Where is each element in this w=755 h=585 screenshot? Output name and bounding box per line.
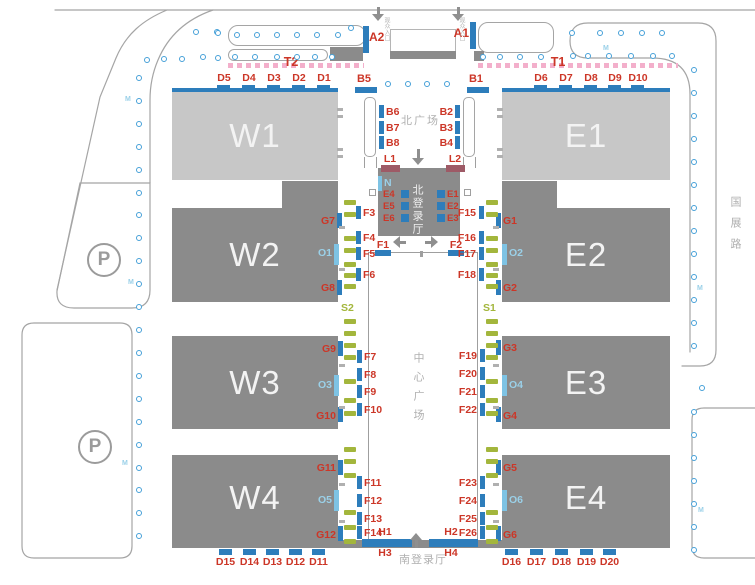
hall-edge-tick xyxy=(493,364,499,367)
right-road-dots xyxy=(691,113,697,119)
right-loop-dots xyxy=(669,53,675,59)
gate-bar-b6 xyxy=(379,105,384,118)
gate-bar-l2 xyxy=(446,165,465,172)
right-loop-dots xyxy=(659,30,665,36)
left-road-dots xyxy=(136,533,142,539)
gate-label-d11: D11 xyxy=(302,557,335,568)
east-green-dashes xyxy=(486,273,498,278)
right-road-dots xyxy=(691,343,697,349)
gate-bar-d4 xyxy=(242,85,255,92)
west-green-dashes xyxy=(344,343,356,348)
gate-bar-f16 xyxy=(479,231,484,244)
hall-edge-tick xyxy=(339,226,345,229)
gate-bar-d2 xyxy=(292,85,305,92)
gate-bar-f21 xyxy=(480,385,485,398)
gate-label-o4: O4 xyxy=(509,380,527,391)
west-green-dashes xyxy=(344,212,356,217)
west-green-dashes xyxy=(344,284,356,289)
bus-lane-lower-dots xyxy=(294,54,300,60)
bus-lane-lower-dots xyxy=(232,54,238,60)
hall-e2: E2 xyxy=(502,208,670,302)
bus-lane-upper-dots xyxy=(254,32,260,38)
east-green-dashes xyxy=(486,379,498,384)
east-green-dashes xyxy=(486,212,498,217)
west-green-dashes xyxy=(344,459,356,464)
gate-label-g11: G11 xyxy=(310,463,336,474)
right-road-dots xyxy=(691,136,697,142)
exhibition-center-map: W1E1W2E2W3E3W4E4A2A1T2T1B5B1B6B7B8B2B3B4… xyxy=(0,0,755,585)
gate-label-f18: F18 xyxy=(452,270,476,281)
metro-mark: M xyxy=(697,285,703,292)
gate-bar-b8 xyxy=(379,136,384,149)
walk-stub-2 xyxy=(376,157,377,168)
north-gate-strip xyxy=(390,51,456,59)
metro-mark: M xyxy=(128,279,134,286)
gate-bar-b7 xyxy=(379,121,384,134)
hall-label: E2 xyxy=(565,236,607,274)
right-road-dots xyxy=(691,182,697,188)
east-green-dashes xyxy=(486,398,498,403)
hall-e1: E1 xyxy=(502,92,670,180)
gate-bar-b5 xyxy=(355,87,377,93)
gate-label-f17: F17 xyxy=(452,249,476,260)
gate-bar-d1 xyxy=(317,85,330,92)
hall-label: W2 xyxy=(229,236,281,274)
hall-edge-tick xyxy=(339,406,345,409)
gate-label-e4r: E4 xyxy=(383,190,399,200)
east-green-dashes xyxy=(486,331,498,336)
gate-label-f20: F20 xyxy=(453,369,477,380)
gate-label-h2: H2 xyxy=(440,527,462,538)
bus-lane-upper-dots xyxy=(274,32,280,38)
parking-icon: P xyxy=(78,430,112,464)
gate-bar-g9 xyxy=(338,341,343,356)
hall-edge-tick xyxy=(337,148,343,151)
left-road-dots xyxy=(136,304,142,310)
right-road-dots xyxy=(691,320,697,326)
hall-edge-tick xyxy=(493,406,499,409)
gate-label-f19: F19 xyxy=(453,351,477,362)
gate-label-d4: D4 xyxy=(236,73,262,84)
gate-label-g2: G2 xyxy=(503,283,525,294)
bus-lane-lower-dots xyxy=(215,55,221,61)
left-road-dots xyxy=(136,350,142,356)
gate-label-f24: F24 xyxy=(453,496,477,507)
gate-bar-d3 xyxy=(267,85,280,92)
west-green-dashes xyxy=(344,379,356,384)
hall-label: W4 xyxy=(229,479,281,517)
gate-label-n: N xyxy=(384,178,396,189)
hall-label: E3 xyxy=(565,364,607,402)
west-green-dashes xyxy=(344,447,356,452)
gate-bar-d17 xyxy=(530,549,543,555)
bus-lane-upper-dots xyxy=(234,32,240,38)
west-green-dashes xyxy=(344,273,356,278)
gate-label-f10: F10 xyxy=(364,405,390,416)
gate-label-g4: G4 xyxy=(503,411,525,422)
hall-edge-tick xyxy=(339,364,345,367)
right-road-dots xyxy=(691,297,697,303)
gate-label-f12: F12 xyxy=(364,496,390,507)
gate-bar-d9 xyxy=(608,85,621,92)
right-loop-dots xyxy=(650,53,656,59)
gate-label-d5: D5 xyxy=(211,73,237,84)
right-road-dots xyxy=(691,524,697,530)
gate-label-t1: T1 xyxy=(545,56,571,69)
kiosk-right xyxy=(464,189,471,196)
gate-bar-d13 xyxy=(266,549,279,555)
gate-bar-d7 xyxy=(559,85,572,92)
gate-bar-a1 xyxy=(470,22,476,49)
east-green-dashes xyxy=(486,284,498,289)
gate-label-g5: G5 xyxy=(503,463,525,474)
bus-lane-right-dots xyxy=(480,54,486,60)
gate-bar-f18 xyxy=(479,268,484,281)
south-entrance-arrow xyxy=(410,533,422,548)
hall-blue-line-west xyxy=(172,88,338,92)
gate-bar-f11 xyxy=(357,476,362,489)
west-green-dashes xyxy=(344,331,356,336)
gate-label-f4: F4 xyxy=(363,233,385,244)
hall-e4: E4 xyxy=(502,455,670,540)
east-green-dashes xyxy=(486,262,498,267)
right-loop-dots xyxy=(628,53,634,59)
left-road-dots xyxy=(136,190,142,196)
hall-exit-arrow-west xyxy=(393,236,406,248)
gate-label-e1r: E1 xyxy=(447,190,463,200)
east-green-dashes xyxy=(486,447,498,452)
gate-label-f21: F21 xyxy=(453,387,477,398)
left-road-dots xyxy=(136,258,142,264)
gate-bar-g11 xyxy=(338,460,343,475)
gate-bar-d5 xyxy=(217,85,230,92)
gate-label-g3: G3 xyxy=(503,343,525,354)
gate-label-g8: G8 xyxy=(313,283,335,294)
gate-label-b8: B8 xyxy=(386,138,406,149)
gate-bar-b3 xyxy=(455,121,460,134)
hall-edge-tick xyxy=(339,268,345,271)
east-green-dashes xyxy=(486,525,498,530)
right-road-dots xyxy=(691,478,697,484)
walkway-left xyxy=(364,97,376,157)
top-left-curve-dots xyxy=(200,54,206,60)
plaza-notch xyxy=(420,251,423,257)
gate-bar-d19 xyxy=(580,549,593,555)
left-road-dots xyxy=(136,465,142,471)
east-green-dashes xyxy=(486,200,498,205)
west-green-dashes xyxy=(344,398,356,403)
east-green-dashes xyxy=(486,473,498,478)
hall-edge-tick xyxy=(337,115,343,118)
west-green-dashes xyxy=(344,262,356,267)
gate-bar-f10 xyxy=(357,403,362,416)
t1-line xyxy=(478,63,678,68)
gate-bar-e2r xyxy=(437,202,445,210)
gate-bar-f20 xyxy=(480,367,485,380)
gate-bar-d16 xyxy=(505,549,518,555)
left-road-dots xyxy=(136,167,142,173)
gate-label-d1: D1 xyxy=(311,73,337,84)
north-plaza-text: 北广场 xyxy=(401,116,440,127)
gate-label-a2: A2 xyxy=(369,31,393,43)
gate-bar-e4r xyxy=(401,190,409,198)
bus-lane-lower-dots xyxy=(274,54,280,60)
east-green-dashes xyxy=(486,343,498,348)
gate-bar-f5 xyxy=(356,247,361,260)
right-road-dots xyxy=(691,159,697,165)
gate-label-g1: G1 xyxy=(503,216,525,227)
hall-edge-tick xyxy=(497,155,503,158)
gate-bar-d20 xyxy=(603,549,616,555)
visitor-entrance-text: 观众入口 xyxy=(458,17,464,41)
right-loop-dots xyxy=(639,30,645,36)
hall-edge-tick xyxy=(493,483,499,486)
hall-w1: W1 xyxy=(172,92,338,180)
bus-lane-upper-dots xyxy=(294,32,300,38)
hall-edge-tick xyxy=(339,520,345,523)
gate-label-b1: B1 xyxy=(463,74,489,85)
west-green-dashes xyxy=(344,525,356,530)
north-plaza-dots xyxy=(424,81,430,87)
west-green-dashes xyxy=(344,473,356,478)
left-road-dots xyxy=(136,281,142,287)
annex-top-left xyxy=(330,47,363,61)
gate-bar-f6 xyxy=(356,268,361,281)
gate-bar-b2 xyxy=(455,105,460,118)
gate-label-d6: D6 xyxy=(528,73,554,84)
parking-label: P xyxy=(98,249,111,271)
north-hall-text: 北登录厅 xyxy=(411,184,422,236)
gate-bar-f17 xyxy=(479,247,484,260)
gate-bar-f14 xyxy=(357,526,362,539)
hall-e3: E3 xyxy=(502,336,670,429)
gate-bar-d11 xyxy=(312,549,325,555)
gate-label-f9: F9 xyxy=(364,387,386,398)
gate-bar-o5 xyxy=(334,490,339,511)
parking-lot-2-outline xyxy=(22,323,132,558)
left-road-dots xyxy=(136,419,142,425)
gate-label-g6: G6 xyxy=(503,530,525,541)
center-plaza-text: 中心广场 xyxy=(412,352,423,428)
east-green-dashes xyxy=(486,355,498,360)
gate-label-f6: F6 xyxy=(363,270,385,281)
hall-exit-arrow-east xyxy=(425,236,438,248)
north-plaza-arrow xyxy=(412,149,424,165)
gate-label-f25: F25 xyxy=(453,514,477,525)
hall-edge-tick xyxy=(497,148,503,151)
gate-label-f22: F22 xyxy=(453,405,477,416)
bus-lane-right-dots xyxy=(538,54,544,60)
bus-lane-right-dots xyxy=(517,54,523,60)
left-road-dots xyxy=(136,98,142,104)
gate-label-e5r: E5 xyxy=(383,202,399,212)
right-road-dots xyxy=(691,228,697,234)
right-road-dots xyxy=(691,274,697,280)
gate-bar-l1 xyxy=(381,165,400,172)
gate-label-g7: G7 xyxy=(313,216,335,227)
gate-label-d10: D10 xyxy=(625,73,651,84)
left-road-dots xyxy=(136,327,142,333)
gate-label-o2: O2 xyxy=(509,248,527,259)
hall-edge-tick xyxy=(497,115,503,118)
west-green-dashes xyxy=(344,248,356,253)
gate-label-o3: O3 xyxy=(314,380,332,391)
right-road-dots xyxy=(691,455,697,461)
right-loop-dots xyxy=(597,30,603,36)
gate-label-f8: F8 xyxy=(364,370,386,381)
north-plaza-dots xyxy=(385,81,391,87)
bus-lane-upper-dots xyxy=(335,32,341,38)
gate-label-d20: D20 xyxy=(593,557,626,568)
bus-lane-upper-dots xyxy=(215,30,221,36)
gate-bar-f25 xyxy=(480,512,485,525)
gate-bar-e5r xyxy=(401,202,409,210)
gate-label-f7: F7 xyxy=(364,352,386,363)
hall-label: W1 xyxy=(229,117,281,155)
gate-label-f5: F5 xyxy=(363,249,385,260)
gate-bar-d18 xyxy=(555,549,568,555)
gate-bar-d8 xyxy=(584,85,597,92)
east-green-dashes xyxy=(486,248,498,253)
road-name-text: 国展路 xyxy=(729,196,740,259)
gate-bar-f22 xyxy=(480,403,485,416)
gate-label-o1: O1 xyxy=(314,248,332,259)
hall-edge-tick xyxy=(337,108,343,111)
bus-lane-right-dots xyxy=(497,54,503,60)
gate-bar-o2 xyxy=(502,244,507,265)
gate-bar-f8 xyxy=(357,368,362,381)
gate-label-l1: L1 xyxy=(378,154,402,165)
north-plaza-dots xyxy=(405,81,411,87)
gate-label-s1: S1 xyxy=(483,303,499,314)
annex-w1 xyxy=(282,181,338,209)
north-plaza-dots xyxy=(444,81,450,87)
right-road-dots xyxy=(691,90,697,96)
right-road-dots xyxy=(691,409,697,415)
left-road-dots xyxy=(136,442,142,448)
gate-bar-e6r xyxy=(401,214,409,222)
left-road-dots xyxy=(136,396,142,402)
south-hall-text: 南登录厅 xyxy=(399,555,447,566)
hall-edge-tick xyxy=(493,520,499,523)
gate-label-g10: G10 xyxy=(310,411,336,422)
gate-bar-f7 xyxy=(357,350,362,363)
bus-lane-lower-dots xyxy=(312,54,318,60)
west-green-dashes xyxy=(344,319,356,324)
hall-edge-tick xyxy=(493,268,499,271)
left-road-dots xyxy=(136,75,142,81)
gate-bar-f23 xyxy=(480,476,485,489)
metro-mark: M xyxy=(125,96,131,103)
right-road-dots xyxy=(699,385,705,391)
gate-bar-d10 xyxy=(631,85,644,92)
hall-label: W3 xyxy=(229,364,281,402)
gate-label-f3: F3 xyxy=(363,208,385,219)
right-loop-dots xyxy=(618,30,624,36)
walk-stub-4 xyxy=(475,157,476,168)
gate-bar-d14 xyxy=(243,549,256,555)
left-road-dots xyxy=(136,235,142,241)
left-road-dots xyxy=(136,510,142,516)
right-loop-dots xyxy=(585,53,591,59)
gate-label-f13: F13 xyxy=(364,514,390,525)
gate-label-t2: T2 xyxy=(278,56,304,69)
walk-stub-1 xyxy=(364,157,365,168)
gate-bar-f3 xyxy=(356,206,361,219)
top-left-curve-dots xyxy=(179,56,185,62)
gate-label-d2: D2 xyxy=(286,73,312,84)
east-green-dashes xyxy=(486,319,498,324)
gate-label-h3: H3 xyxy=(374,548,396,559)
bus-lane-upper-dots xyxy=(348,25,354,31)
gate-bar-f24 xyxy=(480,494,485,507)
gate-label-o5: O5 xyxy=(314,495,332,506)
right-road-dots xyxy=(691,205,697,211)
road-right-south-segment xyxy=(692,408,755,558)
walkway-right xyxy=(463,97,475,157)
west-green-dashes xyxy=(344,236,356,241)
east-green-dashes xyxy=(486,236,498,241)
gate-bar-f26 xyxy=(480,526,485,539)
left-road-dots xyxy=(136,121,142,127)
kiosk-left xyxy=(369,189,376,196)
gate-bar-o1 xyxy=(334,244,339,265)
gate-bar-n xyxy=(378,176,382,191)
gate-bar-h2 xyxy=(429,539,478,547)
gate-bar-d6 xyxy=(534,85,547,92)
bus-lane-lower-dots xyxy=(329,54,335,60)
east-green-dashes xyxy=(486,411,498,416)
gate-bar-o3 xyxy=(334,375,339,396)
left-road-dots xyxy=(136,487,142,493)
gate-label-g12: G12 xyxy=(310,530,336,541)
gate-bar-g8 xyxy=(337,280,342,295)
right-loop-dots xyxy=(606,53,612,59)
gate-bar-f9 xyxy=(357,385,362,398)
hall-edge-tick xyxy=(337,155,343,158)
gate-bar-d15 xyxy=(219,549,232,555)
gate-label-d3: D3 xyxy=(261,73,287,84)
right-road-dots xyxy=(691,67,697,73)
gate-bar-d12 xyxy=(289,549,302,555)
gate-bar-g12 xyxy=(338,526,343,541)
east-green-dashes xyxy=(486,459,498,464)
east-green-dashes xyxy=(486,539,498,544)
hall-label: E1 xyxy=(565,117,607,155)
right-road-dots xyxy=(691,251,697,257)
gate-bar-h1 xyxy=(362,539,412,547)
right-loop-dots xyxy=(570,53,576,59)
gate-bar-b4 xyxy=(455,136,460,149)
right-loop-dots xyxy=(569,30,575,36)
gate-label-f16: F16 xyxy=(452,233,476,244)
gate-label-a1: A1 xyxy=(445,27,469,39)
bus-lane-upper-dots xyxy=(314,32,320,38)
west-green-dashes xyxy=(344,539,356,544)
west-green-dashes xyxy=(344,411,356,416)
gate-label-o6: O6 xyxy=(509,495,527,506)
gate-label-f15: F15 xyxy=(452,208,476,219)
right-road-dots xyxy=(691,547,697,553)
left-road-dots xyxy=(136,144,142,150)
west-green-dashes xyxy=(344,355,356,360)
gate-bar-f15 xyxy=(479,206,484,219)
gate-bar-f12 xyxy=(357,494,362,507)
gate-label-l2: L2 xyxy=(443,154,467,165)
left-road-dots xyxy=(136,212,142,218)
annex-e1 xyxy=(502,181,557,209)
plaza-right xyxy=(477,252,478,540)
